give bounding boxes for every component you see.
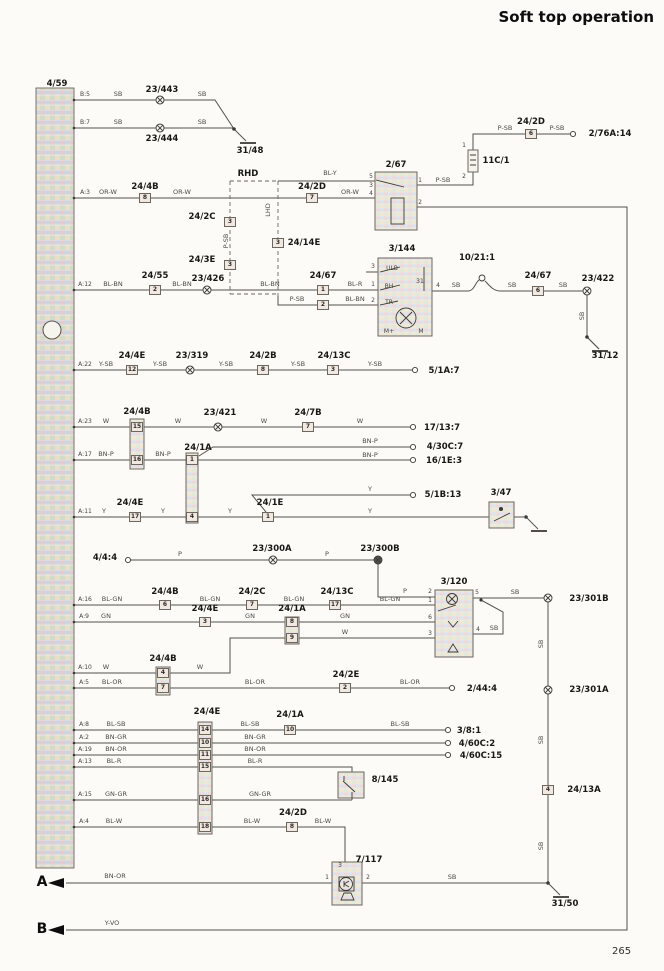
comp-7-117-box [332, 862, 362, 905]
splice-23-301a [544, 686, 552, 694]
box-24-13c-3: 3 [327, 365, 339, 375]
wire-p-1: P [178, 551, 182, 558]
pin-a2: A:2 [79, 735, 89, 741]
pin-2-67-4: 4 [369, 191, 373, 197]
box-24-4e-12: 12 [126, 365, 138, 375]
conn-24-55-label: 24/55 [142, 272, 169, 281]
ground-31-48-label: 31/48 [237, 147, 264, 156]
terminal-2-76a-14 [570, 131, 575, 136]
terminal-4-60c-2 [445, 740, 450, 745]
splice-23-319-label: 23/319 [176, 352, 209, 361]
box-24-1a-10: 10 [284, 725, 296, 735]
term-4-4-4: 4/4:4 [93, 554, 117, 563]
box-24-13c-17: 17 [329, 600, 341, 610]
box-24-2d-7: 7 [306, 193, 318, 203]
pin-a23: A:23 [78, 419, 92, 425]
wire-y-vo: Y-VO [105, 920, 120, 927]
box-24-2d-8: 8 [286, 822, 298, 832]
wiring-diagram-page: Soft top operation [0, 0, 664, 971]
box-24-4b-16: 16 [131, 455, 143, 465]
wire-w-4: W [357, 418, 363, 425]
box-24-67-2: 2 [317, 300, 329, 310]
terminal-4-60c-15 [445, 752, 450, 757]
wire-bl-sb-2: BL-SB [241, 721, 260, 728]
ground-31-50-label: 31/50 [552, 900, 579, 909]
wire-bl-sb-3: BL-SB [391, 721, 410, 728]
box-24-4e-11: 11 [199, 750, 211, 760]
pin-7-117-2: 2 [366, 875, 370, 881]
wire-bl-gn-1: BL-GN [102, 596, 122, 603]
pin-3-120-3: 3 [428, 631, 432, 637]
wire-gn-gr-2: GN-GR [249, 791, 271, 798]
box-24-1a-9: 9 [286, 633, 298, 643]
pin-3-144-2: 2 [371, 298, 375, 304]
conn-24-4e-a22-label: 24/4E [119, 352, 146, 361]
ground-31-12-label: 31/12 [592, 352, 619, 361]
wire-or-w-3: OR-W [341, 189, 359, 196]
pin-3-120-5: 5 [475, 590, 479, 596]
wire-bn-or-1: BN-OR [105, 746, 126, 753]
comp-2-67-label: 2/67 [386, 161, 407, 170]
wire-sb-10: SB [448, 874, 457, 881]
fuse-11c1-pin2: 2 [462, 174, 466, 180]
conn-10-21-1-label: 10/21:1 [459, 254, 495, 263]
conn-24-13a-label: 24/13A [567, 786, 600, 795]
box-24-67-6: 6 [532, 286, 544, 296]
wire-bn-p-2: BN-P [155, 451, 171, 458]
wire-sb-rot-4: SB [538, 842, 545, 851]
wire-y-1: Y [102, 508, 106, 515]
band-marker-circle [43, 321, 61, 339]
splice-23-319 [186, 366, 194, 374]
splice-23-426-label: 23/426 [192, 275, 225, 284]
wire-p-sb-1: P-SB [436, 177, 451, 184]
conn-24-1e-label: 24/1E [257, 499, 284, 508]
conn-24-4b-a10-label: 24/4B [149, 655, 176, 664]
terminal-4-4-4 [125, 557, 130, 562]
splice-23-421 [214, 423, 222, 431]
box-24-1a-8: 8 [286, 617, 298, 627]
conn-24-3e-label: 24/3E [189, 256, 216, 265]
wire-bl-y: BL-Y [323, 170, 337, 177]
conn-24-67-6-label: 24/67 [525, 272, 552, 281]
wire-bl-r-2: BL-R [107, 758, 122, 765]
wire-bl-w-3: BL-W [315, 818, 331, 825]
wire-gn-3: GN [340, 613, 350, 620]
splice-23-300b [374, 556, 382, 564]
pin-3-144-1: 1 [371, 282, 375, 288]
wire-bn-or-2: BN-OR [244, 746, 265, 753]
terminal-2-44-4 [449, 685, 454, 690]
wire-p-sb-rot: P-SB [223, 234, 230, 249]
term-3-8-1: 3/8:1 [457, 727, 481, 736]
splice-23-426 [203, 286, 211, 294]
pin-a12: A:12 [78, 282, 92, 288]
wire-p-sb-3: P-SB [550, 125, 565, 132]
fuse-11c1-box [468, 150, 478, 172]
pin-a9: A:9 [79, 614, 89, 620]
wire-sb-2: SB [198, 91, 207, 98]
wire-w-7: W [197, 664, 203, 671]
pin-3-120-2: 2 [428, 589, 432, 595]
wire-bl-w-1: BL-W [106, 818, 122, 825]
pin-a11: A:11 [78, 509, 92, 515]
term-4-30c-7: 4/30C:7 [427, 443, 463, 452]
comp-8-145-box [338, 772, 364, 798]
wire-bl-or-1: BL-OR [102, 679, 122, 686]
term-5-1a-7: 5/1A:7 [429, 367, 460, 376]
wire-y-2: Y [161, 508, 165, 515]
arrow-a-icon [48, 878, 64, 888]
pin-a5: A:5 [79, 680, 89, 686]
box-24-4b-7: 7 [157, 683, 169, 693]
box-24-4e-10: 10 [199, 738, 211, 748]
comp-3-47-box [489, 502, 514, 528]
wire-sb-rot-1: SB [579, 312, 586, 321]
terminal-4-30c-7 [410, 444, 415, 449]
splice-23-301b-label: 23/301B [569, 595, 608, 604]
box-24-4e-14: 14 [199, 725, 211, 735]
sensor-dot-3-47 [499, 507, 502, 510]
comp-3-47-label: 3/47 [491, 489, 512, 498]
wire-gn-2: GN [245, 613, 255, 620]
pin-a17: A:17 [78, 452, 92, 458]
wire-y-4: Y [368, 486, 372, 493]
comp-2-67-box [375, 172, 417, 230]
pin-a22: A:22 [78, 362, 92, 368]
sym-bh: BH [385, 284, 394, 290]
wire-sb-9: SB [490, 625, 499, 632]
splice-23-301a-label: 23/301A [569, 686, 608, 695]
wire-w-2: W [175, 418, 181, 425]
wire-y-sb-3: Y-SB [219, 361, 233, 368]
conn-24-4e-a9-label: 24/4E [192, 605, 219, 614]
wire-bl-or-3: BL-OR [400, 679, 420, 686]
box-24-4e-15: 15 [199, 762, 211, 772]
wire-p-2: P [325, 551, 329, 558]
pin-3-120-4: 4 [476, 627, 480, 633]
sym-tr: TR [385, 300, 393, 306]
arrow-b-icon [48, 925, 64, 935]
wire-bl-r-3: BL-R [248, 758, 263, 765]
conn-24-4b-a16-label: 24/4B [151, 588, 178, 597]
sym-31: 31 [416, 279, 424, 285]
pin-a16: A:16 [78, 597, 92, 603]
splice-23-443 [156, 96, 164, 104]
wire-w-3: W [261, 418, 267, 425]
conn-24-4b-strip-label: 24/4B [123, 408, 150, 417]
wire-w-5: W [342, 629, 348, 636]
box-24-55-2: 2 [149, 285, 161, 295]
direction-arrows [48, 878, 64, 935]
conn-24-2c-a16-label: 24/2C [238, 588, 265, 597]
splice-23-422-label: 23/422 [582, 275, 615, 284]
pin-a8: A:8 [79, 722, 89, 728]
wire-y-3: Y [228, 508, 232, 515]
lhd-label: LHD [265, 203, 272, 217]
conn-24-14e-label: 24/14E [288, 239, 321, 248]
box-24-7b-7: 7 [302, 422, 314, 432]
pin-2-67-2: 2 [418, 200, 422, 206]
box-24-3e-3: 3 [224, 260, 236, 270]
conn-24-13c-a16-label: 24/13C [321, 588, 354, 597]
wire-sb-3: SB [114, 119, 123, 126]
conn-24-2c-label: 24/2C [188, 213, 215, 222]
box-24-2d-6: 6 [525, 129, 537, 139]
wire-bn-p-1: BN-P [98, 451, 114, 458]
conn-24-1a-a9-label: 24/1A [278, 605, 305, 614]
conn-24-1a-strip-label: 24/1A [184, 444, 211, 453]
pin-2-67-3: 3 [369, 183, 373, 189]
terminal-3-8-1 [445, 727, 450, 732]
terminal-17-13-7 [410, 424, 415, 429]
wire-y-sb-5: Y-SB [368, 361, 382, 368]
conn-24-4b-a3-label: 24/4B [131, 183, 158, 192]
term-2-44-4: 2/44:4 [467, 685, 497, 694]
wire-bl-bn-2: BL-BN [172, 281, 191, 288]
pin-a15: A:15 [78, 792, 92, 798]
terminal-5-1b-13 [410, 492, 415, 497]
comp-3-120-label: 3/120 [441, 578, 468, 587]
wire-bl-gn-4: BL-GN [380, 596, 400, 603]
pin-7-117-3: 3 [338, 863, 342, 869]
pin-2-67-1: 1 [418, 178, 422, 184]
box-24-2b-8: 8 [257, 365, 269, 375]
splice-23-443-label: 23/443 [146, 86, 179, 95]
wire-sb-1: SB [114, 91, 123, 98]
comp-8-145-label: 8/145 [372, 776, 399, 785]
pin-b7: B:7 [80, 120, 90, 126]
box-24-4b-6: 6 [159, 600, 171, 610]
pin-3-144-3: 3 [371, 264, 375, 270]
wire-bl-bn-3: BL-BN [260, 281, 279, 288]
pin-3-120-6: 6 [428, 615, 432, 621]
wire-sb-7: SB [559, 282, 568, 289]
box-24-4b-15: 15 [131, 422, 143, 432]
splice-23-421-label: 23/421 [204, 409, 237, 418]
wire-w-6: W [103, 664, 109, 671]
wire-or-w-2: OR-W [173, 189, 191, 196]
pin-a10: A:10 [78, 665, 92, 671]
pin-a4: A:4 [79, 819, 89, 825]
pin-a3: A:3 [80, 190, 90, 196]
comp-3-120-box [435, 590, 473, 657]
box-24-13a-4: 4 [542, 785, 554, 795]
ground-symbols [240, 143, 608, 897]
wire-sb-5: SB [452, 282, 461, 289]
term-17-13-7: 17/13:7 [424, 424, 460, 433]
splice-23-300b-label: 23/300B [360, 545, 399, 554]
conn-24-1a-a8-label: 24/1A [276, 711, 303, 720]
splice-23-300a [269, 556, 277, 564]
wire-bl-gn-3: BL-GN [284, 596, 304, 603]
box-24-4b-8: 8 [139, 193, 151, 203]
connector-band-4-59 [36, 88, 74, 868]
sym-ulb: ULB [386, 266, 398, 272]
wire-sb-6: SB [508, 282, 517, 289]
splices [156, 96, 591, 694]
wire-sb-4: SB [198, 119, 207, 126]
box-24-4b-4: 4 [157, 668, 169, 678]
box-24-2e-2: 2 [339, 683, 351, 693]
terminal-5-1a-7 [412, 367, 417, 372]
conn-24-2d-a3-label: 24/2D [298, 183, 326, 192]
wiring-diagram-canvas [0, 0, 664, 971]
fuse-11c1-label: 11C/1 [482, 157, 509, 166]
conn-24-2e-label: 24/2E [333, 671, 360, 680]
wire-p-3: P [403, 588, 407, 595]
conn-24-2d-top-label: 24/2D [517, 118, 545, 127]
wire-sb-rot-2: SB [538, 640, 545, 649]
box-24-67-1: 1 [317, 285, 329, 295]
pin-b5: B:5 [80, 92, 90, 98]
fuse-11c1-pin1: 1 [462, 143, 466, 149]
wire-y-sb-1: Y-SB [99, 361, 113, 368]
wire-sb-8: SB [511, 589, 520, 596]
connector-4-59-label: 4/59 [47, 80, 68, 89]
pin-a13: A:13 [78, 759, 92, 765]
box-24-4e-3: 3 [199, 617, 211, 627]
label-b: B [37, 922, 48, 936]
wire-bn-p-3: BN-P [362, 438, 378, 445]
wire-bn-or-3: BN-OR [104, 873, 125, 880]
wire-bl-or-2: BL-OR [245, 679, 265, 686]
wire-bl-gn-2: BL-GN [200, 596, 220, 603]
pin-2-67-5: 5 [369, 174, 373, 180]
wire-bl-sb-1: BL-SB [107, 721, 126, 728]
label-a: A [37, 875, 48, 889]
splice-23-301b [544, 594, 552, 602]
wires [66, 100, 627, 930]
conn-24-2b-label: 24/2B [249, 352, 276, 361]
wire-bl-r-1: BL-R [348, 281, 363, 288]
conn-24-2d-a4-label: 24/2D [279, 809, 307, 818]
term-16-1e-3: 16/1E:3 [426, 457, 462, 466]
sym-m-plus: M+ [384, 329, 394, 335]
wire-y-sb-4: Y-SB [291, 361, 305, 368]
conn-24-4e-strip-label: 24/4E [194, 708, 221, 717]
wire-bl-w-2: BL-W [244, 818, 260, 825]
term-2-76a-14: 2/76A:14 [589, 130, 632, 139]
box-24-2c-7: 7 [246, 600, 258, 610]
pin-3-144-4: 4 [436, 283, 440, 289]
wire-y-5: Y [368, 508, 372, 515]
components [130, 150, 514, 905]
wire-gn-gr-1: GN-GR [105, 791, 127, 798]
wire-bn-p-4: BN-P [362, 452, 378, 459]
wire-gn-1: GN [101, 613, 111, 620]
box-24-4e-17: 17 [129, 512, 141, 522]
splice-23-444-label: 23/444 [146, 135, 179, 144]
wire-w-1: W [103, 418, 109, 425]
box-24-1e-1: 1 [262, 512, 274, 522]
box-24-1a-1: 1 [186, 455, 198, 465]
wire-bn-gr-2: BN-GR [244, 734, 265, 741]
connector-10-21-1-icon [479, 275, 485, 281]
splice-23-422 [583, 287, 591, 295]
wire-y-sb-2: Y-SB [153, 361, 167, 368]
wire-sb-rot-3: SB [538, 736, 545, 745]
wire-bn-gr-1: BN-GR [105, 734, 126, 741]
conn-24-4e-a11-label: 24/4E [117, 499, 144, 508]
box-24-14e-3: 3 [272, 238, 284, 248]
wire-or-w-1: OR-W [99, 189, 117, 196]
term-5-1b-13: 5/1B:13 [425, 491, 462, 500]
box-24-2c-3: 3 [224, 217, 236, 227]
sym-m: M [418, 329, 423, 335]
terminal-16-1e-3 [410, 457, 415, 462]
splice-23-300a-label: 23/300A [252, 545, 291, 554]
wire-bl-bn-4: BL-BN [345, 296, 364, 303]
pin-3-120-1: 1 [428, 598, 432, 604]
term-4-60c-2: 4/60C:2 [459, 740, 495, 749]
comp-7-117-label: 7/117 [356, 856, 383, 865]
pin-7-117-1: 1 [325, 875, 329, 881]
wire-p-sb-2: P-SB [498, 125, 513, 132]
page-number: 265 [612, 946, 631, 957]
pin-a19: A:19 [78, 747, 92, 753]
comp-3-144-label: 3/144 [389, 245, 416, 254]
box-24-4e-18: 18 [199, 822, 211, 832]
box-24-1a-4: 4 [186, 512, 198, 522]
splice-23-444 [156, 124, 164, 132]
wire-p-sb-4: P-SB [290, 296, 305, 303]
box-24-4e-16: 16 [199, 795, 211, 805]
term-4-60c-15: 4/60C:15 [460, 752, 502, 761]
wire-bl-bn-1: BL-BN [103, 281, 122, 288]
conn-24-67-label: 24/67 [310, 272, 337, 281]
conn-24-7b-label: 24/7B [294, 409, 321, 418]
rhd-label: RHD [238, 170, 259, 179]
conn-24-13c-a22-label: 24/13C [318, 352, 351, 361]
